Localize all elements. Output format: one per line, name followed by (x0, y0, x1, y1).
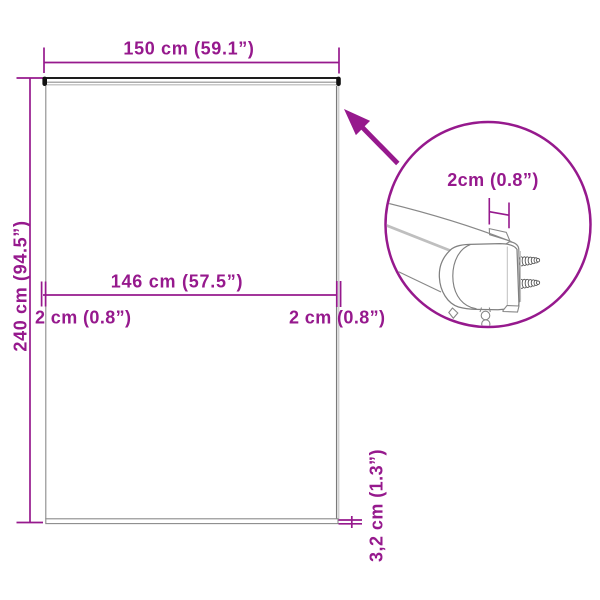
svg-text:150 cm (59.1”): 150 cm (59.1”) (123, 39, 254, 59)
svg-text:2cm (0.8”): 2cm (0.8”) (447, 170, 539, 190)
svg-text:2 cm (0.8”): 2 cm (0.8”) (289, 308, 385, 328)
svg-text:240 cm (94.5”): 240 cm (94.5”) (11, 220, 31, 351)
svg-text:146 cm (57.5”): 146 cm (57.5”) (111, 272, 244, 292)
svg-text:2 cm (0.8”): 2 cm (0.8”) (35, 308, 131, 328)
svg-text:3,2 cm (1.3”): 3,2 cm (1.3”) (367, 449, 387, 562)
